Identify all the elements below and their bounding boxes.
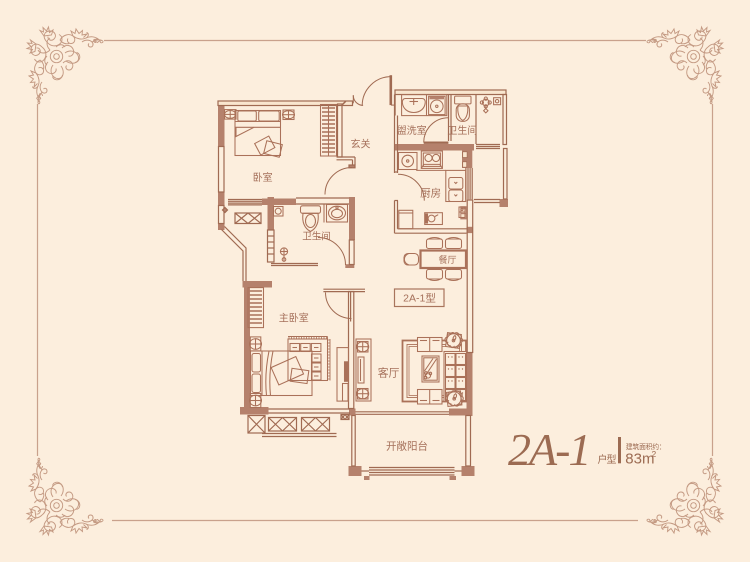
svg-text:卫生间: 卫生间 [302, 231, 331, 243]
svg-text:2A-1: 2A-1 [508, 424, 589, 475]
svg-text:玄关: 玄关 [351, 138, 371, 151]
svg-text:盥洗室: 盥洗室 [397, 124, 427, 137]
svg-text:83m: 83m [625, 450, 654, 467]
svg-text:餐厅: 餐厅 [438, 254, 456, 265]
svg-text:户型: 户型 [598, 453, 617, 466]
svg-text:2: 2 [652, 449, 657, 459]
svg-text:客厅: 客厅 [378, 365, 400, 379]
svg-text:主卧室: 主卧室 [279, 311, 309, 324]
svg-text:厨房: 厨房 [420, 187, 441, 200]
svg-text:开敞阳台: 开敞阳台 [386, 440, 428, 453]
svg-text:2A-1型: 2A-1型 [403, 292, 436, 305]
svg-text:卫生间: 卫生间 [447, 124, 477, 137]
svg-text:卧室: 卧室 [253, 171, 273, 184]
